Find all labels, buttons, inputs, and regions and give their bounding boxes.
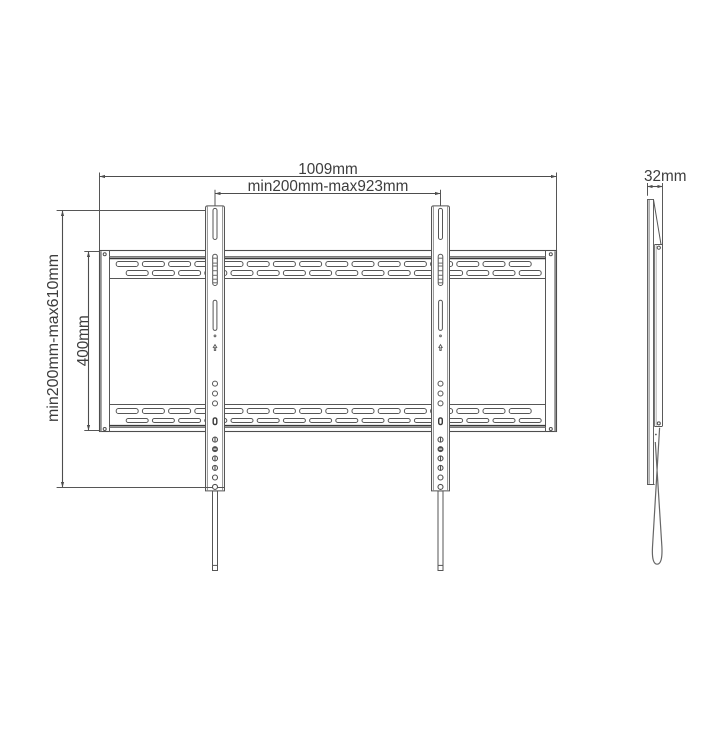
svg-text:1009mm: 1009mm bbox=[298, 161, 358, 178]
svg-text:min200mm-max610mm: min200mm-max610mm bbox=[45, 254, 62, 422]
svg-text:400mm: 400mm bbox=[75, 315, 92, 366]
svg-text:32mm: 32mm bbox=[644, 168, 687, 185]
svg-text:min200mm-max923mm: min200mm-max923mm bbox=[248, 178, 409, 195]
